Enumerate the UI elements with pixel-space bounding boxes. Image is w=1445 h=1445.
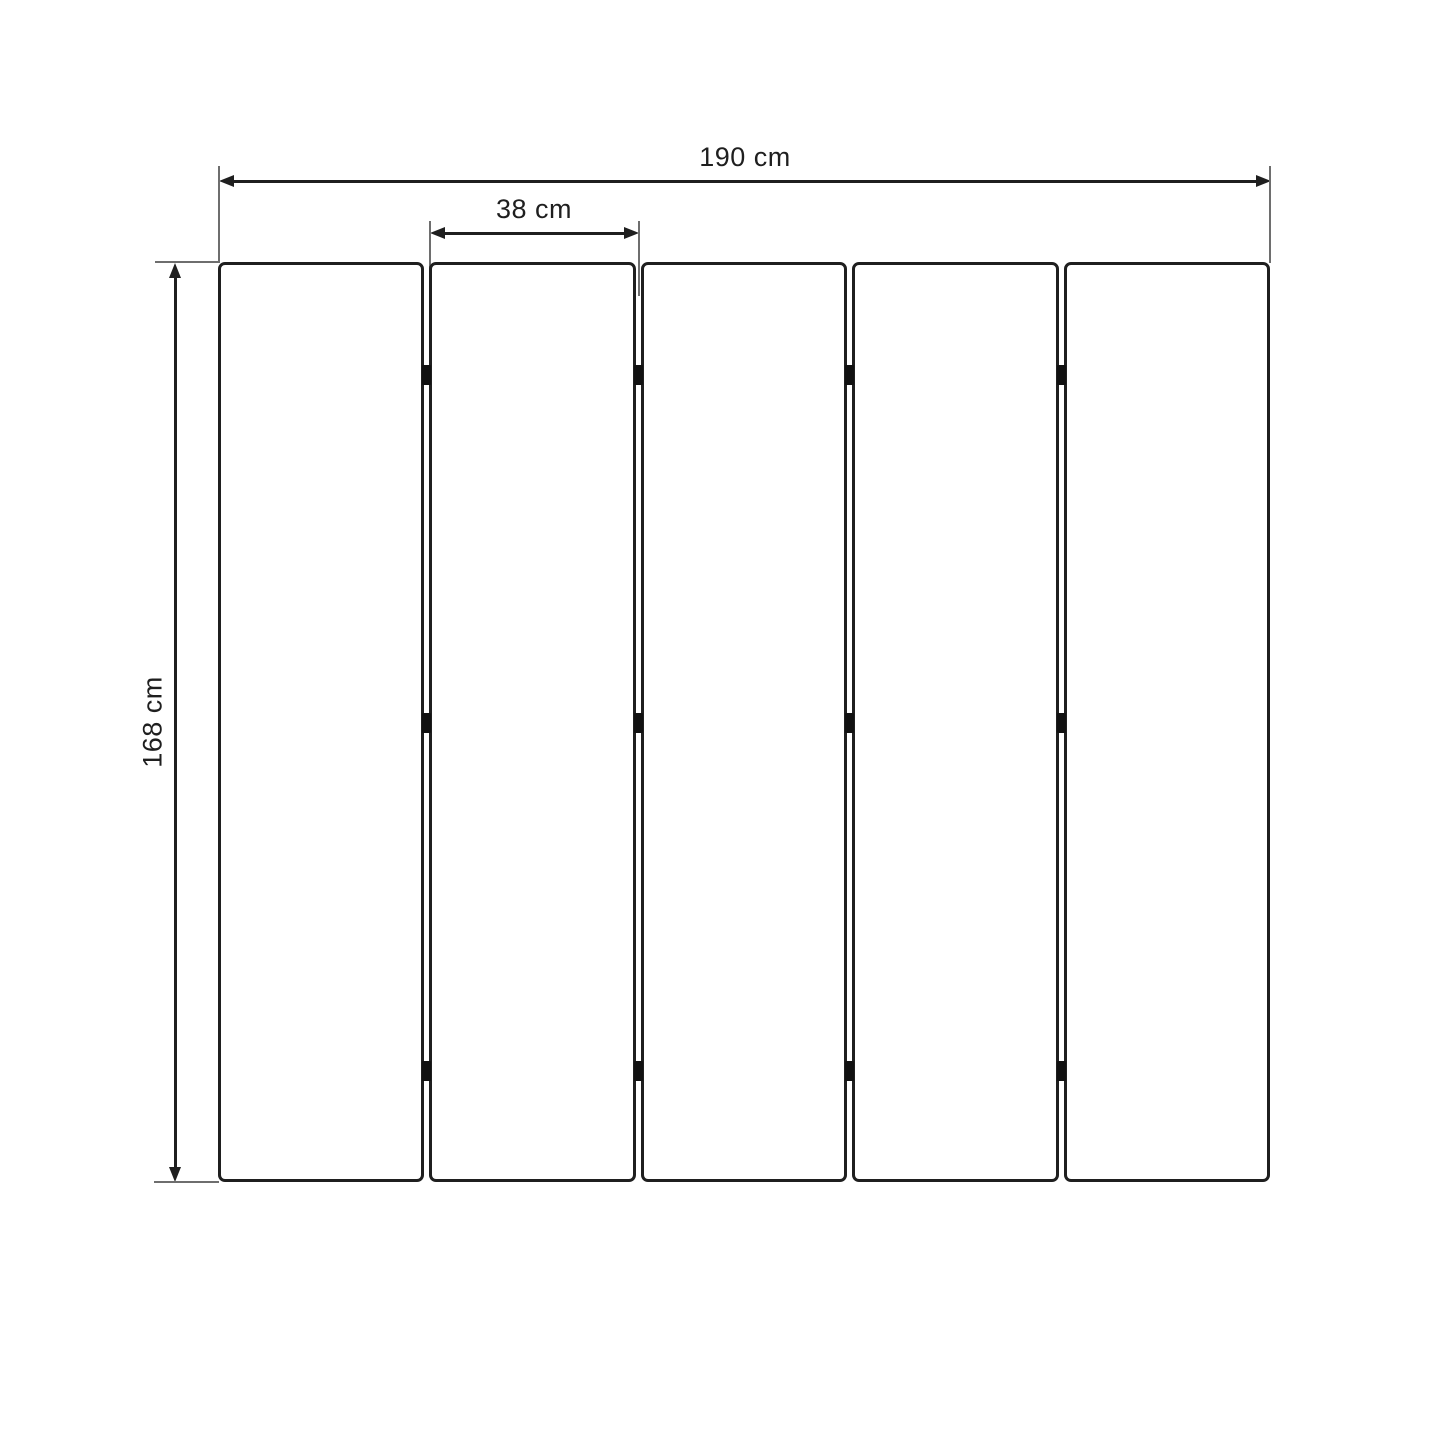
total-width-dimension-line <box>232 180 1258 183</box>
hinge <box>422 713 431 733</box>
hinge <box>845 713 854 733</box>
extension-line <box>155 261 220 263</box>
extension-line <box>154 1181 219 1183</box>
panel-4 <box>852 262 1058 1182</box>
arrow-down-icon <box>169 1167 181 1182</box>
total-width-label: 190 cm <box>220 142 1270 173</box>
extension-line <box>218 166 220 263</box>
panel-3 <box>641 262 847 1182</box>
hinge <box>422 1061 431 1081</box>
hinge <box>1057 1061 1066 1081</box>
panel-width-label: 38 cm <box>428 194 640 225</box>
arrow-left-icon <box>219 175 234 187</box>
panel-width-dimension-line <box>443 232 626 235</box>
hinge <box>845 1061 854 1081</box>
height-dimension-line <box>174 276 177 1168</box>
hinge <box>634 713 643 733</box>
height-label: 168 cm <box>138 676 169 768</box>
hinge <box>1057 713 1066 733</box>
arrow-left-icon <box>430 227 445 239</box>
hinge <box>1057 365 1066 385</box>
hinge <box>422 365 431 385</box>
panels-row <box>218 262 1270 1182</box>
hinge <box>634 365 643 385</box>
panel-5 <box>1064 262 1270 1182</box>
dimension-diagram: 190 cm 38 cm 168 cm <box>0 0 1445 1445</box>
hinge <box>634 1061 643 1081</box>
hinge <box>845 365 854 385</box>
panel-2 <box>429 262 635 1182</box>
arrow-up-icon <box>169 263 181 278</box>
panel-1 <box>218 262 424 1182</box>
arrow-right-icon <box>624 227 639 239</box>
extension-line <box>1269 166 1271 263</box>
